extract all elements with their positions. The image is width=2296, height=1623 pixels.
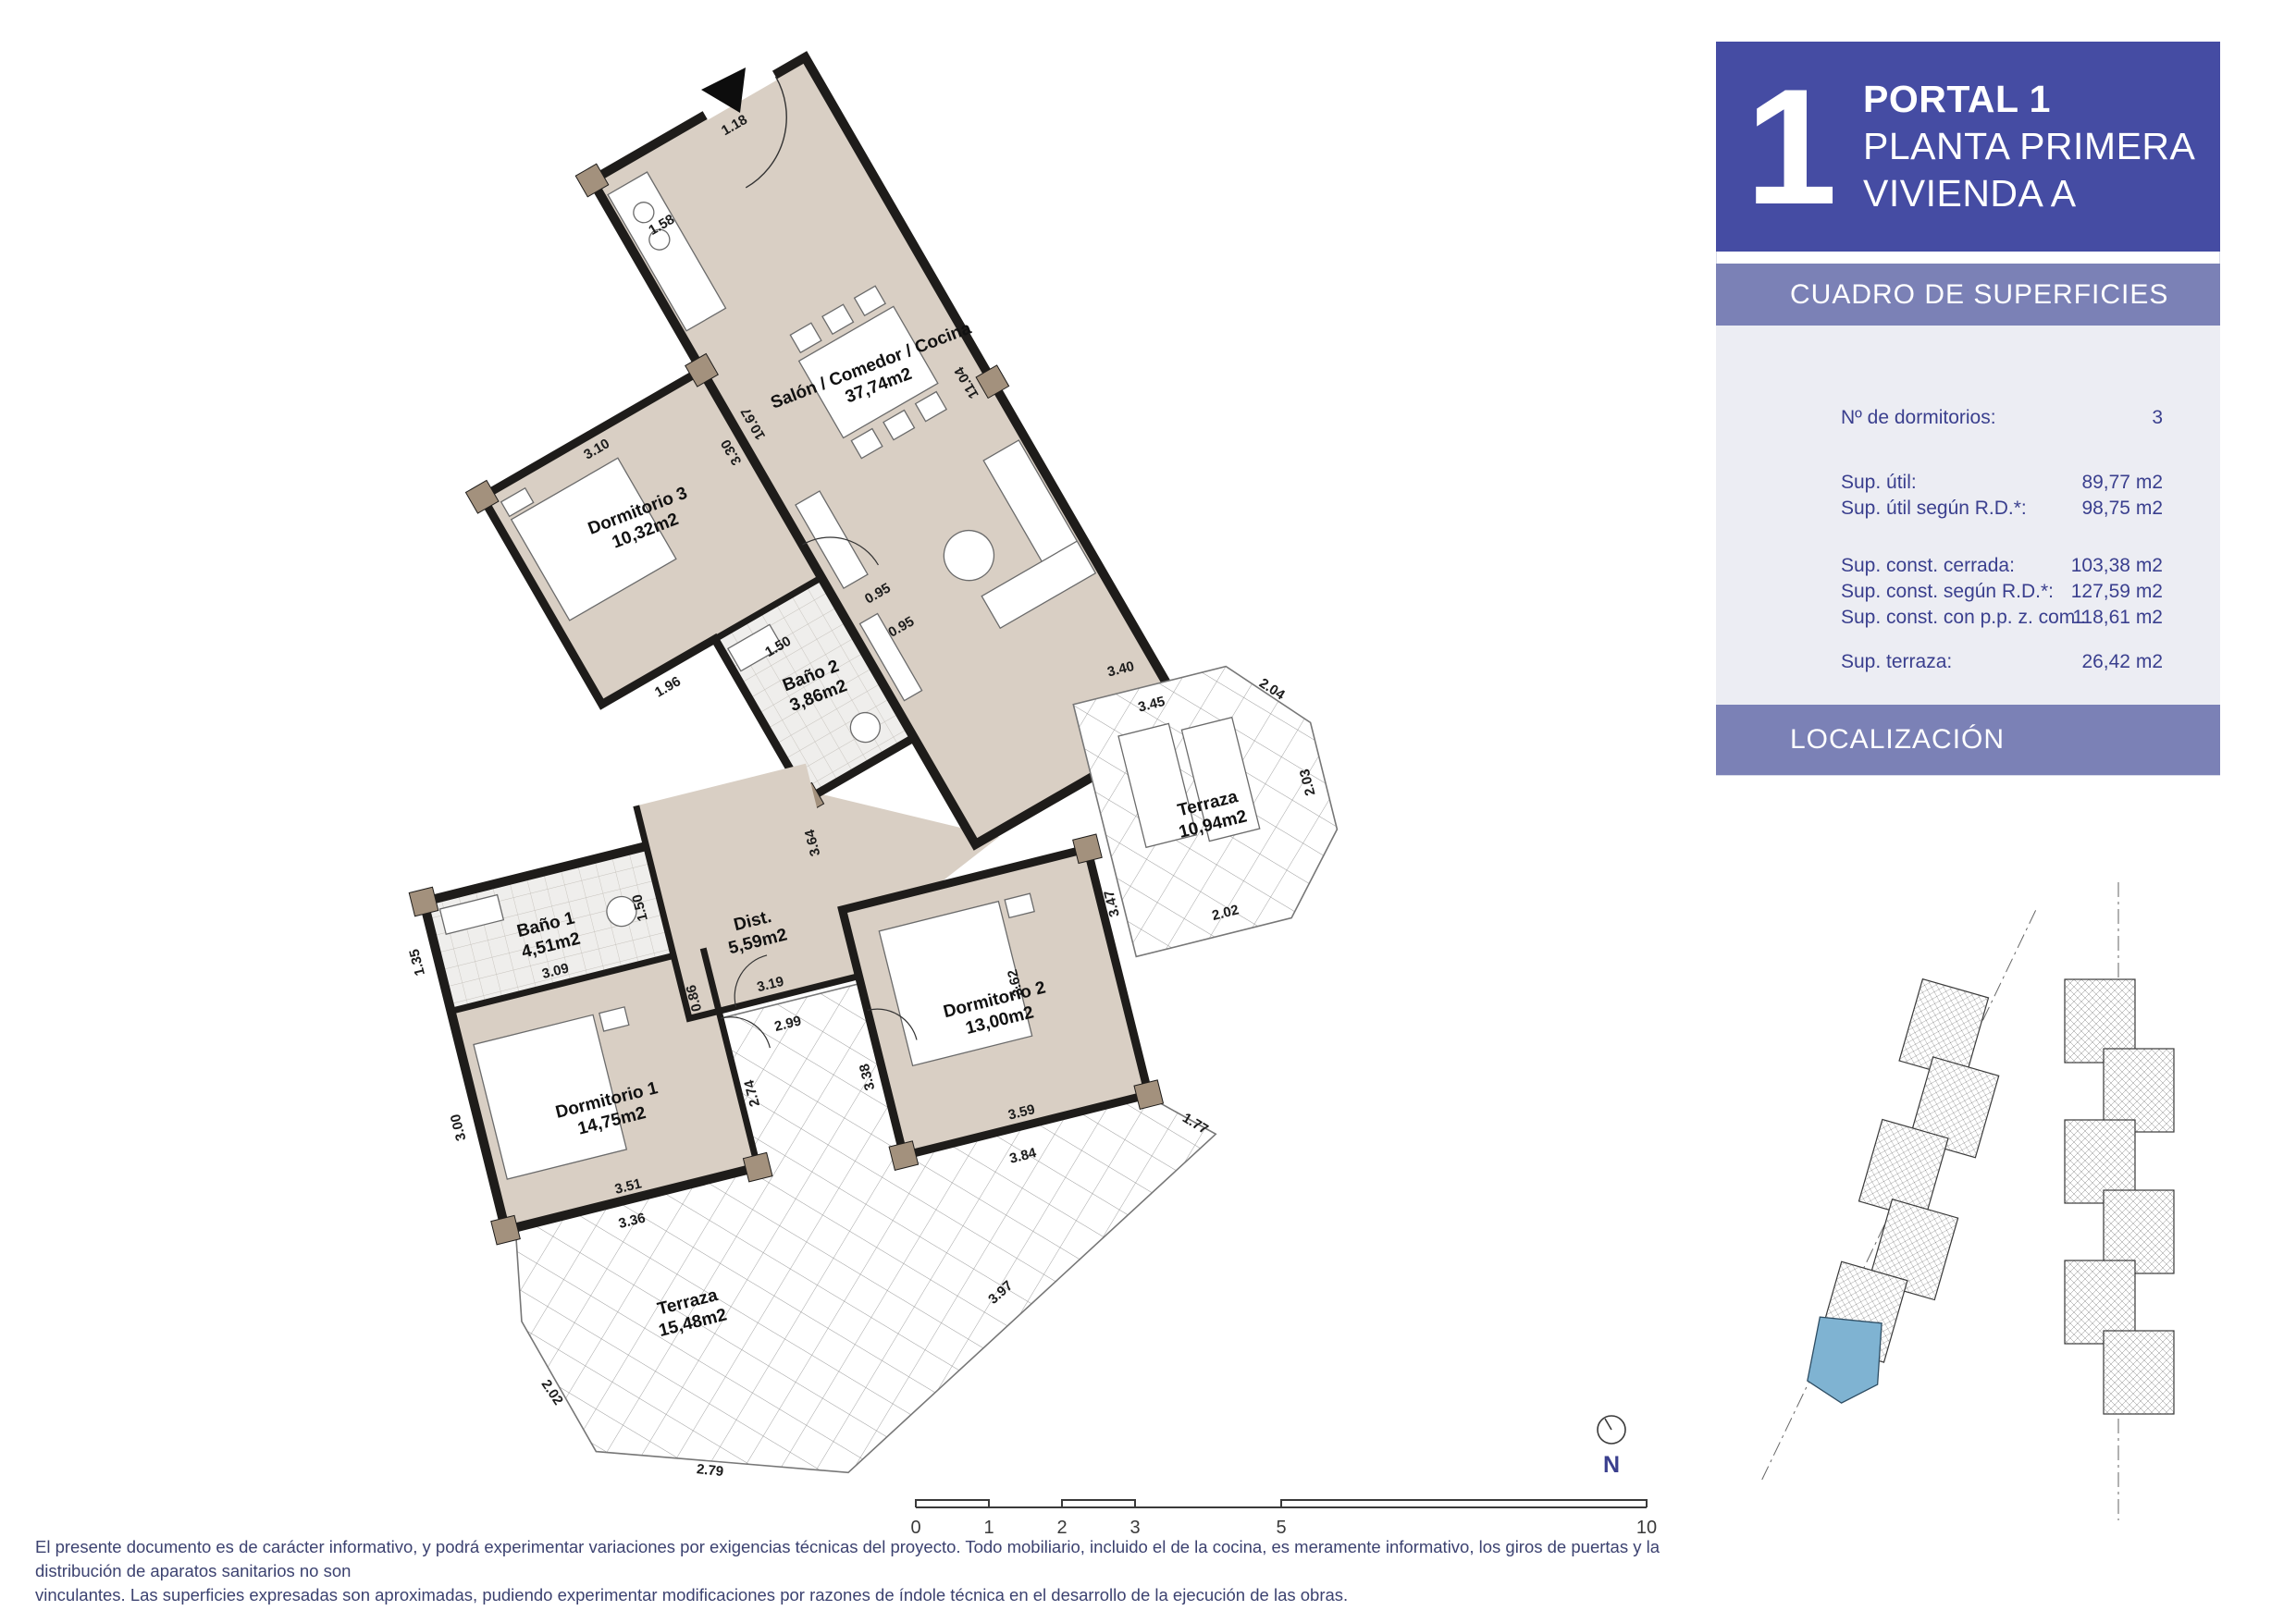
row-label: Sup. const. cerrada: [1841,555,2015,577]
row-label: Sup. terraza: [1841,651,1952,673]
row-value: 118,61 m2 [2072,607,2163,629]
dimension-label: 1.35 [406,947,428,977]
scale-tick: 2 [1056,1518,1067,1535]
north-label: N [1603,1452,1620,1478]
row-label: Sup. const. según R.D.*: [1841,581,2054,603]
dimension-label: 1.96 [652,673,684,700]
surfaces-section-header: CUADRO DE SUPERFICIES [1716,264,2220,326]
column [1073,834,1103,864]
unit-number: 1 [1746,65,1832,229]
surfaces-table: Nº de dormitorios: 3 Sup. útil: 89,77 m2… [1716,326,2220,705]
column [889,1141,919,1171]
plan-sheet: 1.18 1.58 11.04 3.10 10.67 3.30 0.95 0.9… [0,0,2296,1623]
table-row: Sup. const. según R.D.*: 127,59 m2 [1841,581,2163,605]
row-value: 26,42 m2 [2081,651,2163,673]
vivienda-title: VIVIENDA A [1863,170,2195,217]
table-row: Sup. útil según R.D.*: 98,75 m2 [1841,498,2163,522]
table-row: Sup. const. cerrada: 103,38 m2 [1841,555,2163,579]
row-value: 3 [2152,407,2163,429]
scale-bar: 0 1 2 3 5 10 [910,1500,1657,1535]
dimension-label: 3.00 [448,1113,470,1142]
unit-header: 1 PORTAL 1 PLANTA PRIMERA VIVIENDA A [1716,42,2220,252]
site-plan-svg [1716,776,2218,1534]
row-label: Sup. útil según R.D.*: [1841,498,2027,520]
portal-title: PORTAL 1 [1863,76,2195,123]
localization-title: LOCALIZACIÓN [1790,724,2005,756]
scale-tick: 3 [1129,1518,1140,1535]
column [491,1215,521,1245]
north-indicator: N [1598,1416,1625,1478]
disclaimer-line1: El presente documento es de carácter inf… [35,1535,1700,1583]
disclaimer: El presente documento es de carácter inf… [35,1535,1700,1607]
row-value: 127,59 m2 [2071,581,2163,603]
row-value: 98,75 m2 [2081,498,2163,520]
scale-tick: 0 [910,1518,920,1535]
disclaimer-line2: vinculantes. Las superficies expresadas … [35,1583,1700,1607]
table-row: Sup. útil: 89,77 m2 [1841,472,2163,496]
column [743,1152,772,1182]
localization-box [1716,775,2220,1535]
row-label: Sup. útil: [1841,472,1917,494]
column [1134,1080,1164,1110]
row-value: 89,77 m2 [2081,472,2163,494]
site-building-left [1761,881,2045,1514]
table-row: Sup. terraza: 26,42 m2 [1841,651,2163,675]
table-row: Sup. const. con p.p. z. com.: 118,61 m2 [1841,607,2163,631]
planta-title: PLANTA PRIMERA [1863,123,2195,170]
site-building-right [2065,882,2174,1520]
scale-tick: 1 [983,1518,994,1535]
scale-tick: 10 [1636,1518,1657,1535]
localization-section-header: LOCALIZACIÓN [1716,705,2220,775]
row-value: 103,38 m2 [2071,555,2163,577]
row-label: Sup. const. con p.p. z. com.: [1841,607,2086,629]
table-row: Nº de dormitorios: 3 [1841,407,2163,431]
scale-tick: 5 [1276,1518,1286,1535]
dimension-label: 2.79 [696,1461,724,1480]
row-label: Nº de dormitorios: [1841,407,1996,429]
surfaces-title: CUADRO DE SUPERFICIES [1790,279,2168,311]
column [409,887,438,916]
floor-plan-svg: 1.18 1.58 11.04 3.10 10.67 3.30 0.95 0.9… [0,0,1707,1535]
